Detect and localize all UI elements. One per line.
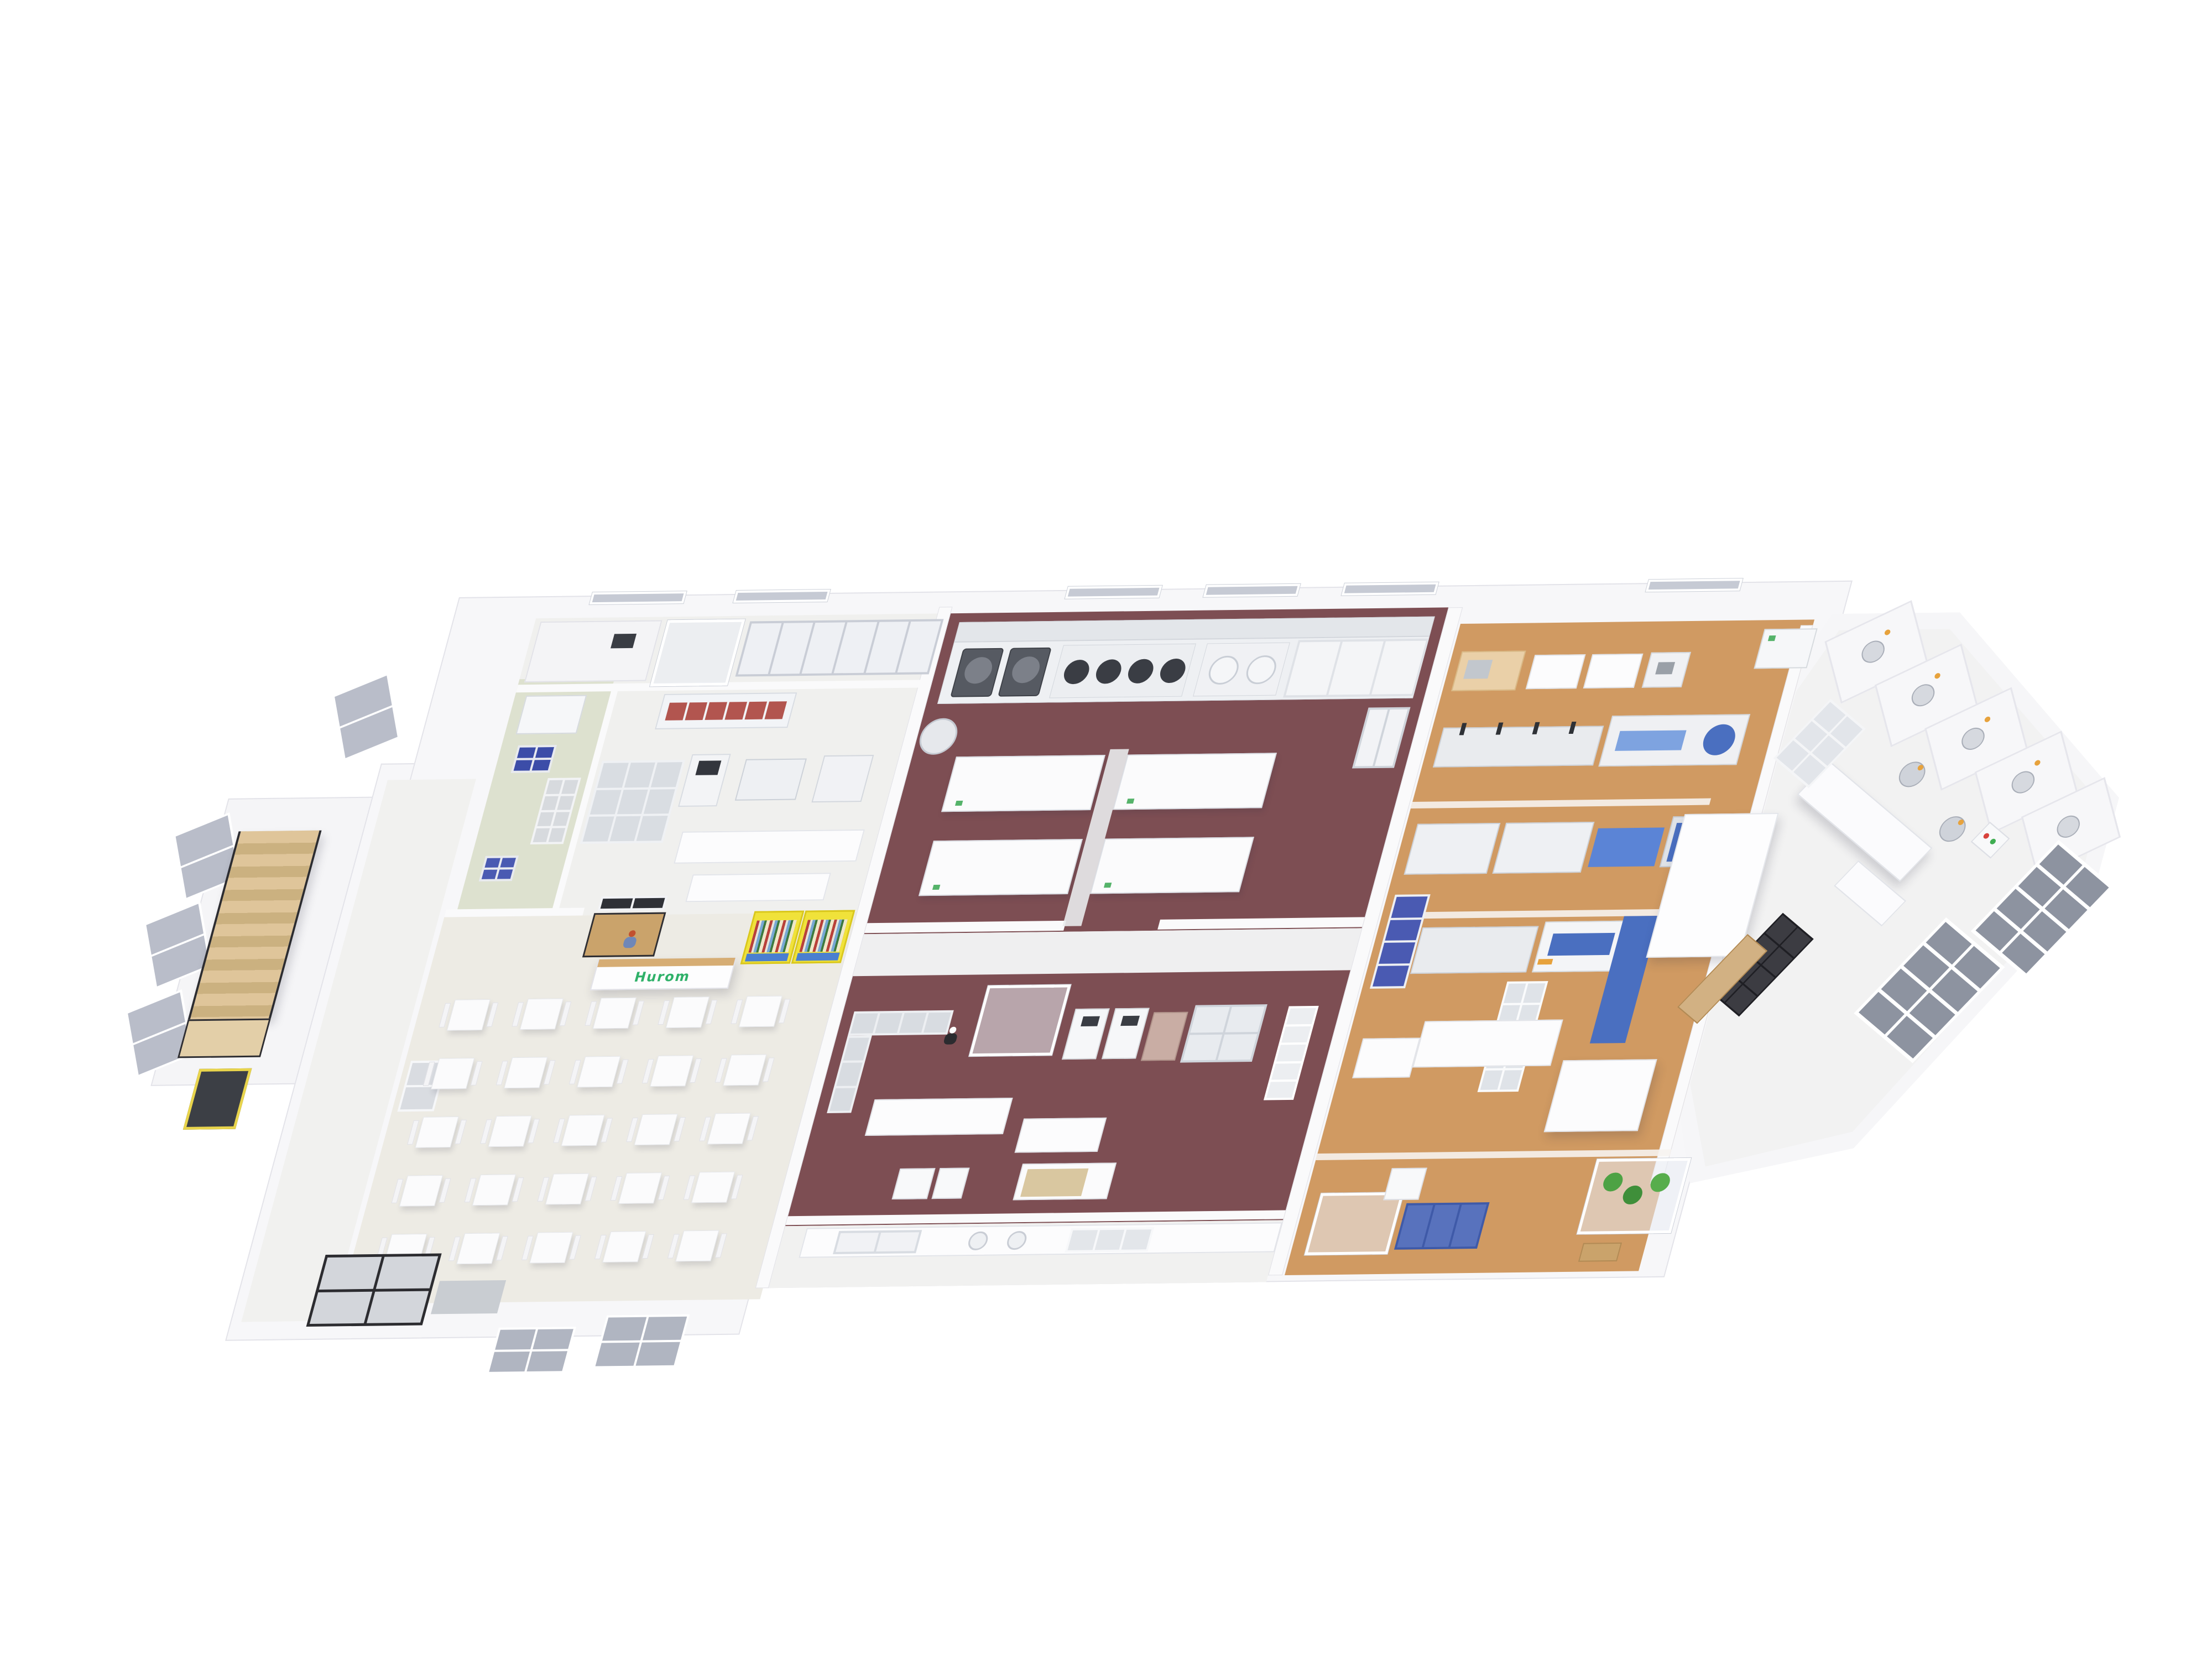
prep-island [1090, 837, 1254, 894]
dish-shelf-a [848, 1010, 954, 1036]
crates-blue-b [479, 855, 519, 881]
dish-shelf-b-cell [830, 1088, 855, 1111]
rack-mosaic-cell [549, 828, 566, 842]
dining-table [472, 1174, 516, 1206]
machine-accent-orange [2034, 759, 2041, 767]
rack-mosaic-cell [557, 796, 574, 810]
prep-table-long-b [685, 873, 831, 902]
washer-drum-blue [1699, 724, 1739, 755]
prep-island [1113, 753, 1277, 810]
crates-blue-b-cell [484, 858, 500, 868]
rack-mosaic-cell [541, 796, 559, 810]
crates-blue-a-cell [532, 760, 551, 770]
upright-fridge-proc [1754, 628, 1817, 669]
meat-display-contents-cell [665, 702, 687, 720]
entry-mat [431, 1280, 506, 1314]
wok-burner [1125, 659, 1156, 684]
machine [1959, 724, 1987, 754]
wok-burner [1093, 659, 1124, 684]
kiosk-card-readers-cell [601, 898, 633, 909]
dining-table [415, 1117, 459, 1148]
dining-table [399, 1175, 443, 1207]
dining-table [545, 1173, 589, 1205]
machine [1910, 680, 1937, 710]
ladder-rack-cell [1286, 1008, 1316, 1025]
wok-burner [1061, 660, 1092, 685]
work-table-b [1015, 1118, 1107, 1153]
window-bay-south-1-cell [489, 1352, 530, 1372]
slot-shelf-cell [1523, 983, 1546, 1003]
cooler-base-blue [796, 953, 840, 961]
dining-table [577, 1056, 620, 1088]
glass-box-room [1305, 1192, 1404, 1255]
faucet-sink-line [1433, 726, 1604, 767]
meat-display-contents [662, 699, 790, 723]
meat-display-contents-cell [724, 702, 747, 719]
wash-tank-c [1410, 926, 1539, 974]
dish-rack-shelf-cell [583, 817, 614, 842]
stock-pot [1206, 656, 1242, 685]
dish-rack-shelf-cell [651, 762, 682, 787]
prep-table-proc-b [1583, 654, 1644, 688]
stairs-landing [178, 1019, 271, 1058]
dining-table [707, 1113, 751, 1145]
ladder-rack-cell [1271, 1063, 1301, 1080]
dish-rack-shelf-cell [624, 763, 656, 787]
dish-shelf-a-cell [851, 1013, 878, 1033]
crates-blue-a-cell [517, 747, 536, 758]
kiosk-card-readers-cell [633, 898, 665, 909]
prep-table-proc-a [1526, 654, 1586, 689]
crate-wood [1578, 1243, 1622, 1262]
person-head [948, 1027, 957, 1034]
wash-sink-unit [735, 758, 807, 800]
fridge-row-west [735, 619, 944, 676]
window-bay-south-1 [486, 1327, 576, 1374]
work-table-a [865, 1098, 1013, 1136]
machine-accent-orange [1884, 629, 1891, 637]
ladder-rack-cell [1266, 1082, 1296, 1098]
entry-vestibule-cell [319, 1257, 382, 1290]
cutting-table [1013, 1162, 1117, 1200]
island-label-green [1104, 883, 1112, 888]
window-bay-south-1-cell [495, 1329, 536, 1350]
dining-table [504, 1057, 547, 1088]
dining-table [650, 1055, 693, 1087]
wash-tank-b2 [1493, 822, 1595, 874]
rack-bins-blue-cell [1391, 896, 1428, 917]
window-north-4 [1203, 584, 1301, 597]
floor-kitchen-aisle [853, 928, 1362, 976]
dish-rack-shelf-cell [590, 790, 622, 815]
dining-table [488, 1115, 532, 1147]
screenshot-canvas: Hurom [0, 0, 2212, 1659]
cooler-base-blue [745, 953, 789, 962]
window-north-3 [1065, 586, 1162, 599]
button-red [1983, 832, 1991, 840]
person-head [628, 930, 637, 937]
long-table-proc [1412, 1019, 1563, 1067]
cutting-board-wood [1020, 1168, 1089, 1197]
office-room [524, 620, 662, 682]
conveyor-washer-a [1598, 714, 1750, 766]
window-bay-south-1-cell [533, 1329, 573, 1349]
window-north-2 [733, 589, 831, 603]
crates-blue-a-cell [535, 747, 554, 758]
dining-table [723, 1055, 766, 1086]
entry-vestibule-cell [375, 1256, 438, 1289]
wash-tank-b1 [1404, 823, 1501, 875]
rack-mosaic-cell [546, 780, 563, 794]
prep-island [941, 755, 1105, 812]
floor-plan: Hurom [250, 575, 2212, 1371]
dining-table [675, 1230, 719, 1262]
dining-table [520, 998, 564, 1030]
fridge-sticker-green [1768, 635, 1776, 641]
blue-sink-unit [1394, 1202, 1490, 1250]
display-case-pots-cell [836, 1233, 879, 1252]
ladder-rack-cell [1276, 1045, 1306, 1061]
fridge-4door-cell [1218, 1034, 1257, 1060]
dish-shelf-a-cell [875, 1013, 902, 1033]
pot-range [1193, 643, 1290, 697]
fridge-4door-cell [1225, 1006, 1264, 1032]
window-north-1 [589, 591, 687, 604]
rack-bins-blue-cell [1373, 966, 1409, 987]
crates-blue-b-cell [482, 870, 498, 879]
belt-blue [1547, 933, 1615, 956]
dish-rack-shelf-cell [617, 789, 648, 814]
island-label-green [1126, 799, 1134, 804]
person-body [943, 1034, 958, 1045]
crates-blue-b-cell [497, 869, 513, 879]
steamer-row [1283, 639, 1429, 698]
cooker-bowl [962, 657, 995, 684]
dining-table [666, 997, 709, 1028]
entry-vestibule-cell [366, 1291, 429, 1323]
island-label-green [932, 885, 940, 890]
person-body [622, 937, 637, 948]
rack-case-cell [1094, 1230, 1124, 1250]
chest-freezer [516, 695, 587, 734]
window-bay-south-2-cell [643, 1317, 687, 1340]
small-table-proc [1352, 1037, 1420, 1078]
window-bay-south-2-cell [636, 1342, 680, 1366]
rack-mosaic-cell [561, 780, 578, 794]
tan-sink-cabinet [1451, 650, 1526, 691]
crates-blue-a [511, 745, 557, 773]
dining-table [618, 1172, 662, 1204]
window-bay-south-2-cell [602, 1317, 646, 1341]
wok-burner [1157, 659, 1188, 684]
machine-accent-orange [1984, 716, 1991, 723]
dining-table [602, 1231, 646, 1262]
kiosk-counter-top [597, 958, 735, 967]
slot-shelf-cell [1504, 984, 1526, 1004]
dish-shelf-b-cell [836, 1063, 862, 1086]
fridge-4door-cell [1190, 1007, 1229, 1033]
dining-table [456, 1233, 500, 1264]
island-table-proc [1544, 1059, 1657, 1132]
dining-table [634, 1114, 678, 1145]
dish-shelf-b-cell [843, 1037, 869, 1061]
meat-display-contents-cell [685, 702, 707, 720]
cooker-bowl [1009, 656, 1043, 684]
dish-rack-shelf-cell [644, 789, 675, 814]
dining-table [739, 996, 782, 1027]
window-bay-south-2 [592, 1314, 690, 1369]
machine [2010, 767, 2037, 797]
island-label-green [955, 801, 963, 806]
window-bay-west-1 [332, 672, 400, 761]
greens [1601, 1172, 1625, 1191]
cooler-glass [748, 920, 797, 953]
conveyor-blue-b [1588, 827, 1665, 867]
window-north-5 [1342, 582, 1439, 596]
belt-incline [1615, 730, 1687, 750]
window-bay-south-2-cell [596, 1343, 640, 1366]
display-case-pots-cell [876, 1232, 919, 1251]
dish-rack-shelf-cell [609, 816, 641, 841]
meat-display-contents-cell [705, 702, 727, 720]
slicer-blade [1655, 662, 1675, 674]
robot-accent-orange [1917, 765, 1924, 770]
rack-mosaic-cell [533, 828, 550, 842]
machine-accent-orange [1934, 672, 1940, 680]
wok-range [1049, 644, 1196, 698]
button-green [1989, 838, 1997, 846]
crates-blue-a-cell [514, 760, 533, 770]
dish-shelf-a-cell [899, 1013, 927, 1032]
rack-mosaic-cell [552, 812, 570, 826]
kiosk-card-readers [598, 896, 668, 911]
rack-case-cell [1121, 1229, 1151, 1250]
ladder-rack-cell [1281, 1026, 1311, 1043]
greens [1621, 1186, 1645, 1204]
hurom-logo: Hurom [613, 968, 712, 985]
machine [1859, 637, 1887, 666]
rack-case-cell [1068, 1230, 1098, 1250]
window-bay-south-1-cell [526, 1351, 567, 1371]
dining-table [431, 1058, 474, 1089]
dining-table [593, 998, 637, 1029]
sign-orange [1537, 959, 1553, 964]
fridge-4door-cell [1183, 1035, 1222, 1061]
window-north-6 [1646, 578, 1743, 592]
meat-display-contents-cell [764, 701, 787, 719]
dish-rack-shelf-cell [637, 816, 668, 841]
office-monitor [611, 634, 637, 648]
entry-vestibule [306, 1254, 442, 1327]
prep-table-long-a [674, 830, 865, 864]
washer-screen [1120, 1016, 1140, 1026]
dining-table [529, 1232, 573, 1264]
prep-island [919, 839, 1083, 896]
meat-display-contents-cell [744, 702, 767, 719]
stock-pot [1243, 655, 1280, 685]
display-case-pots [833, 1230, 922, 1254]
crates-blue-b-cell [500, 858, 516, 867]
cooler-glass [799, 920, 848, 952]
greens [1648, 1173, 1672, 1192]
sterilizer-screen [695, 760, 721, 775]
dining-table [691, 1172, 735, 1203]
washer-screen [1081, 1016, 1100, 1026]
inset-sink [1463, 660, 1493, 679]
dining-table [561, 1115, 605, 1146]
rack-mosaic-cell [537, 812, 554, 826]
machine [2054, 812, 2082, 842]
rack-case [1065, 1227, 1154, 1253]
entry-vestibule-cell [310, 1291, 372, 1324]
slot-shelf-cell [1500, 1070, 1522, 1090]
dish-rack-shelf-cell [597, 763, 629, 787]
dining-table [447, 999, 491, 1031]
rack-bins-blue-cell [1385, 920, 1421, 941]
robot-accent-orange [1958, 820, 1965, 825]
slot-shelf-cell [1480, 1070, 1503, 1090]
rack-bins-blue-cell [1379, 942, 1415, 963]
